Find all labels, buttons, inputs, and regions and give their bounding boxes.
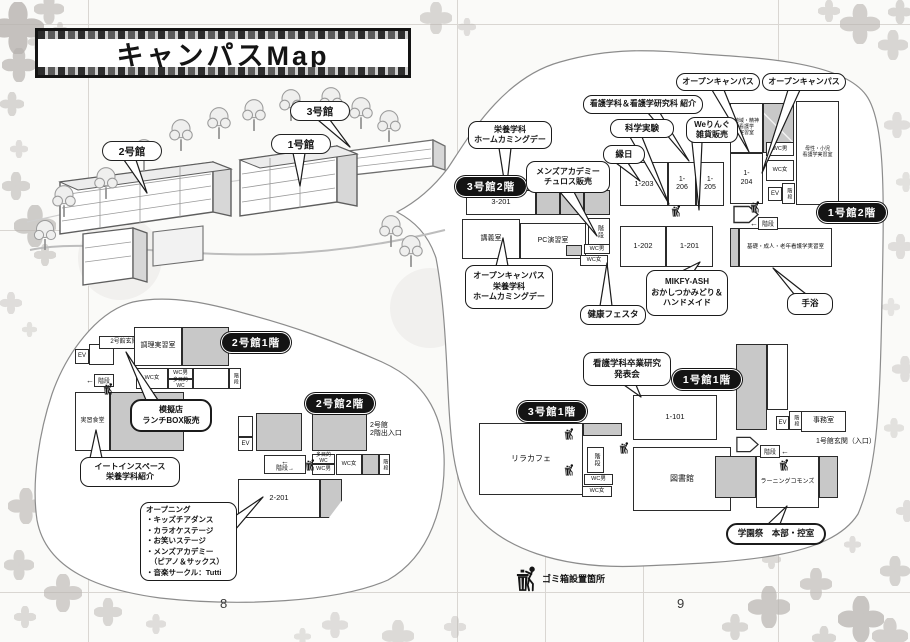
room-unlabeled (320, 479, 342, 518)
trash-icon (564, 464, 574, 476)
stairs-direction: ← 階段 (750, 217, 778, 230)
floor-label-3f1: 3号館1階 (518, 402, 586, 421)
room-stairs: 階段 (379, 454, 390, 475)
room-unlabeled (238, 416, 253, 437)
room-wc-women: WC女 (136, 368, 168, 389)
room-unlabeled (536, 190, 560, 215)
room-maternal-pediatric-nursing: 母性・小児 看護学実習室 (796, 101, 839, 205)
decorative-flower-pattern (0, 0, 910, 642)
trash-legend-label: ゴミ箱設置箇所 (542, 574, 605, 585)
room-1-101: 1-101 (633, 395, 717, 440)
callout-wering-goods: Weりんぐ 雑貨販売 (686, 117, 738, 143)
room-wc-multi: 多目的WC (168, 379, 193, 389)
campus-illustration (25, 82, 455, 332)
room-elevator: EV (75, 349, 89, 364)
film-perforation-strip (38, 31, 408, 39)
building-label-text: 3号館 (307, 104, 334, 119)
arrow-left-icon: ← (86, 376, 93, 385)
room-elevator: EV (768, 187, 782, 201)
floor-label-2f2: 2号館2階 (306, 394, 374, 413)
room-stairs: 階段 (229, 368, 241, 389)
grid-line (778, 0, 779, 642)
room-elevator: EV (238, 437, 253, 451)
grid-line (0, 592, 910, 593)
room-wc-women: WC女 (336, 454, 362, 475)
trash-icon (779, 459, 789, 471)
room-unlabeled (715, 456, 756, 498)
room-wc-women: WC女 (580, 255, 608, 266)
grid-line (0, 24, 910, 25)
page-number-left: 8 (220, 596, 227, 611)
map-blob-shapes (0, 0, 910, 642)
floor-label-text: 2号館1階 (232, 335, 280, 350)
callout-mikfy-ash: MIKFY-ASH おかしつかみどり＆ ハンドメイド (646, 270, 728, 316)
page-gutter-line (545, 556, 546, 642)
room-wc-multi: 多目的WC (312, 454, 335, 464)
callout-festival-hq: 学園祭 本部・控室 (726, 523, 826, 545)
entrance-door-icon (736, 436, 759, 453)
floor-label-1f1: 1号館1階 (673, 370, 741, 389)
room-wc-men: WC男 (766, 142, 794, 156)
trash-icon (305, 459, 315, 471)
room-practice-dining: 実習食堂 (75, 392, 110, 451)
floor-label-text: 3号館2階 (467, 179, 515, 194)
room-wc-women: WC女 (582, 486, 612, 497)
page-gutter-line (643, 556, 644, 642)
callout-science-experiment: 科学実験 (610, 119, 674, 138)
entrance-1-label: 1号館玄関（入口） (816, 438, 896, 446)
campus-map-page: キャンパスMap (0, 0, 910, 642)
building-label-1: 1号館 (271, 134, 331, 154)
room-1-205: 1- 205 (696, 162, 724, 206)
trash-icon (103, 383, 113, 395)
page-number-right: 9 (677, 596, 684, 611)
stairs-label: 階段 (758, 217, 778, 230)
room-unlabeled (730, 228, 739, 267)
arrow-left-icon: ← (781, 447, 788, 456)
callout-eat-in-space: イートインスペース 栄養学科紹介 (80, 457, 180, 487)
room-stairs: 階段 (782, 183, 795, 204)
stairs-label: 階段→ (276, 466, 294, 472)
room-1-206: 1- 206 (668, 162, 696, 206)
page-title-filmstrip: キャンパスMap (35, 28, 411, 78)
room-1-202: 1-202 (620, 226, 666, 267)
callout-health-festa: 健康フェスタ (580, 305, 646, 325)
trash-icon (750, 201, 760, 213)
floor-label-text: 2号館2階 (316, 396, 364, 411)
room-unlabeled (819, 456, 838, 498)
arrow-right-icon: → (288, 466, 294, 472)
room-unlabeled (312, 413, 367, 451)
room-fundamental-adult-geriatric-nursing: 基礎・成人・老年看護学実習室 (739, 228, 832, 267)
grid-line (457, 0, 458, 642)
floor-label-1f2: 1号館2階 (818, 203, 886, 222)
callout-ennichi: 縁日 (603, 145, 645, 164)
callout-open-campus-1: オープンキャンパス (676, 73, 760, 91)
grid-line (0, 230, 88, 231)
building-label-2: 2号館 (102, 141, 162, 161)
film-perforation-strip (38, 67, 408, 75)
room-wc-women: WC女 (766, 160, 794, 181)
room-unlabeled (583, 423, 622, 436)
callout-pointer-tails (0, 0, 910, 642)
room-elevator: EV (776, 416, 789, 430)
floor-label-2f1: 2号館1階 (222, 333, 290, 352)
arrow-left-icon: ← (750, 219, 757, 228)
building-label-3: 3号館 (290, 101, 350, 121)
room-wc-men: WC男 (584, 474, 613, 485)
building-label-text: 2号館 (119, 144, 146, 159)
room-unlabeled (193, 368, 229, 389)
stairs-label: 階段 (760, 445, 780, 458)
floor-label-3f2: 3号館2階 (456, 177, 526, 196)
callout-mogiten-lunchbox: 模擬店 ランチBOX販売 (130, 399, 212, 432)
callout-opening-program: オープニング ・キッズチアダンス ・カラオケステージ ・お笑いステージ ・メンズ… (140, 502, 237, 581)
room-unlabeled (560, 190, 584, 215)
room-office: 事務室 (801, 411, 846, 432)
stairs-direction: 階段 ← (760, 445, 788, 458)
room-lecture: 講義室 (462, 219, 520, 259)
room-stairs: 階段 (587, 447, 604, 473)
floor-label-text: 1号館1階 (683, 372, 731, 387)
trash-legend-icon (515, 566, 537, 592)
callout-hand-bath: 手浴 (787, 293, 833, 315)
callout-mens-academy-churros: メンズアカデミー チュロス販売 (526, 161, 610, 193)
arrow-left-icon: ← (281, 458, 289, 466)
trash-icon (671, 205, 681, 217)
callout-nursing-intro: 看護学科＆看護学研究科 紹介 (583, 95, 703, 114)
room-unlabeled (584, 190, 610, 215)
floor-label-text: 3号館1階 (528, 404, 576, 419)
callout-graduation-research: 看護学科卒業研究 発表会 (583, 352, 671, 386)
room-stairs: 階段 (588, 218, 610, 245)
room-cooking-practice: 調理実習室 (134, 327, 182, 366)
room-wc-men: WC男 (584, 244, 610, 254)
room-unlabeled (256, 413, 302, 451)
room-unlabeled (736, 344, 767, 430)
callout-oc-nutrition-homecoming: オープンキャンパス 栄養学科 ホームカミングデー (465, 265, 553, 309)
room-unlabeled (767, 344, 788, 410)
entrance-2f2-label: 2号館 2階出入口 (370, 422, 414, 439)
floor-label-text: 1号館2階 (828, 205, 876, 220)
stairs-both-directions: ← 階段→ (264, 455, 306, 474)
stairs-text: 階段 (276, 466, 288, 472)
room-1-204: 1- 204 (730, 153, 763, 204)
callout-nutrition-homecoming: 栄養学科 ホームカミングデー (468, 121, 552, 149)
trash-icon (564, 428, 574, 440)
room-wc-men: WC男 (312, 464, 335, 475)
room-unlabeled (362, 454, 379, 475)
room-1-203: 1-203 (620, 162, 668, 206)
grid-line (88, 0, 89, 642)
room-2-201: 2-201 (238, 479, 320, 518)
trash-icon (619, 442, 629, 454)
callout-open-campus-2: オープンキャンパス (762, 73, 846, 91)
building-label-text: 1号館 (288, 137, 315, 152)
room-1-201: 1-201 (666, 226, 713, 267)
